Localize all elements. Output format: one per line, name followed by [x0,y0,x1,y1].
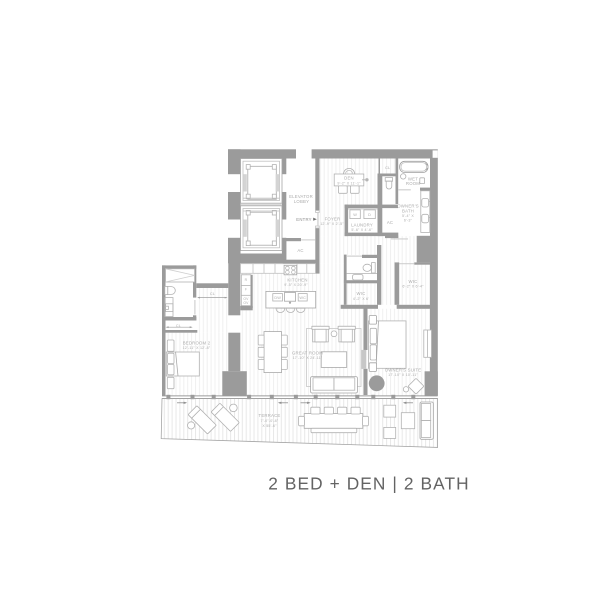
svg-text:GREAT ROOM: GREAT ROOM [292,350,323,355]
svg-text:WC: WC [299,296,306,300]
svg-text:FOYER: FOYER [325,216,341,221]
svg-text:LOBBY: LOBBY [294,199,309,204]
svg-text:KITCHEN: KITCHEN [287,277,307,282]
svg-text:5'-6" X 4'-6": 5'-6" X 4'-6" [351,228,373,232]
svg-text:17'-10" X 24'-11": 17'-10" X 24'-11" [293,356,323,360]
svg-text:17'-10" X 10'-11": 17'-10" X 10'-11" [388,373,418,377]
svg-text:CL: CL [176,324,181,328]
svg-text:4'-2" X 6': 4'-2" X 6' [353,297,369,301]
svg-text:2 BED + DEN | 2 BATH: 2 BED + DEN | 2 BATH [268,474,469,494]
svg-text:TERRACE: TERRACE [259,413,281,418]
svg-text:12'-9" X 2'-5": 12'-9" X 2'-5" [320,222,344,226]
svg-text:6'-3": 6'-3" [404,219,413,223]
svg-text:OWNER'S SUITE: OWNER'S SUITE [385,367,422,372]
svg-text:CL: CL [210,292,215,296]
svg-text:12'-11" X 12'-8": 12'-11" X 12'-8" [183,346,211,350]
svg-text:7'-0"-0'-8": 7'-0"-0'-8" [261,419,279,423]
svg-text:9'-2" X 11'-1": 9'-2" X 11'-1" [337,181,361,185]
svg-text:X 55'-6": X 55'-6" [262,424,277,428]
svg-text:6'-2" X 6'-4": 6'-2" X 6'-4" [402,285,424,289]
svg-text:ROOM: ROOM [406,181,420,186]
svg-text:WIC: WIC [357,291,366,296]
svg-text:CL: CL [385,166,390,170]
svg-text:WIC: WIC [409,279,418,284]
svg-text:R: R [245,278,248,282]
svg-text:DW: DW [274,296,281,300]
svg-text:D: D [368,213,371,217]
svg-text:AC: AC [387,220,393,225]
svg-text:ENTRY: ENTRY [296,217,312,222]
svg-text:W: W [353,213,357,217]
svg-text:BATH: BATH [402,208,414,213]
svg-text:OV: OV [243,301,249,305]
svg-text:5'-4" X: 5'-4" X [402,214,414,218]
svg-text:DEN: DEN [344,175,354,180]
svg-text:LAUNDRY: LAUNDRY [351,223,373,228]
svg-text:BEDROOM 2: BEDROOM 2 [183,341,211,346]
svg-text:F: F [245,288,247,292]
svg-text:9'-5" X 20'-9": 9'-5" X 20'-9" [284,283,308,287]
svg-text:AC: AC [297,248,303,253]
